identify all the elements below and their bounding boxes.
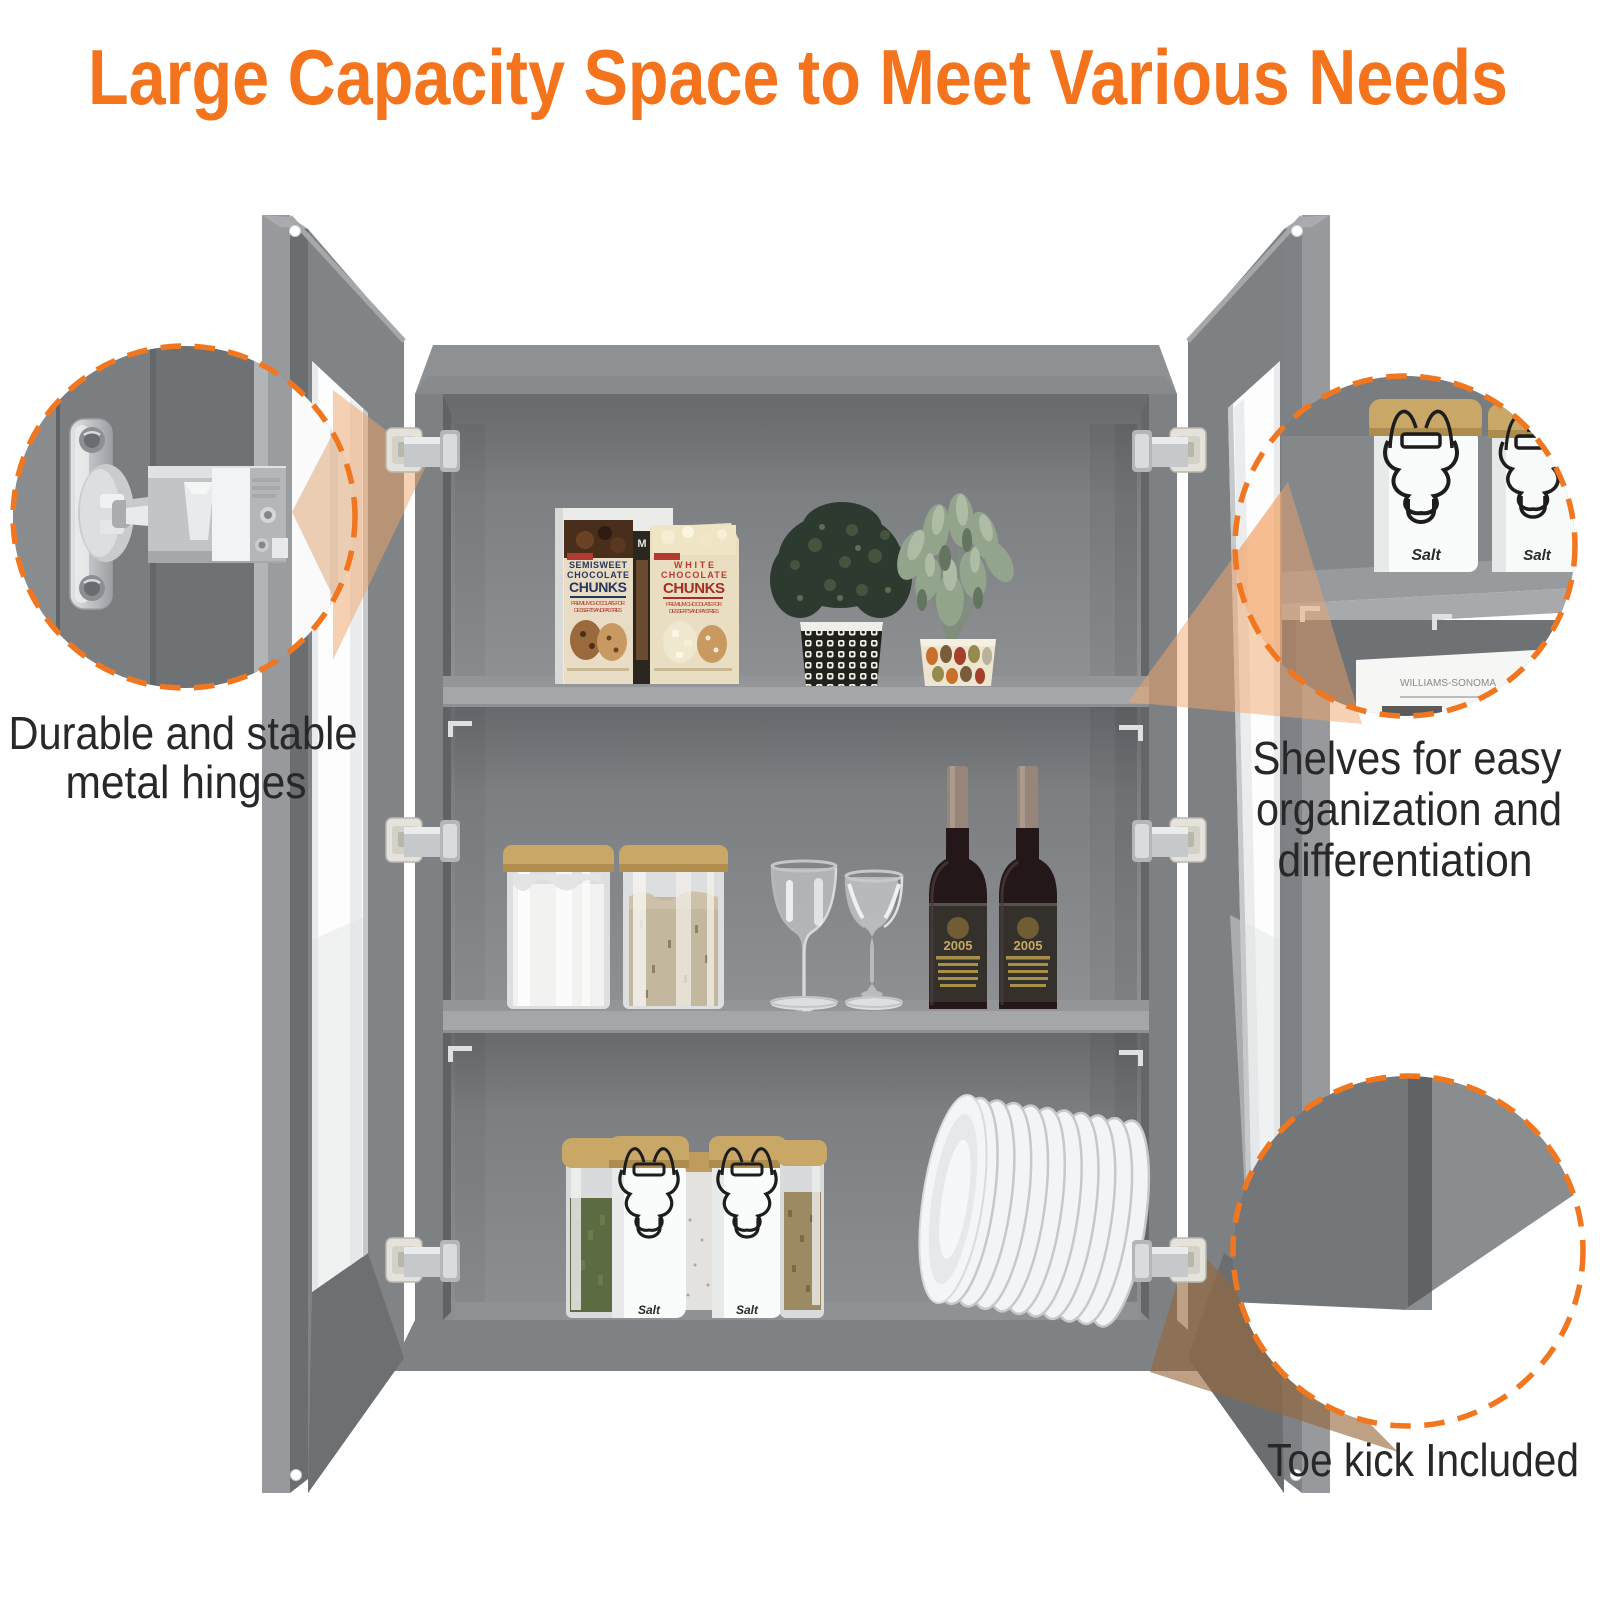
- svg-text:Salt: Salt: [638, 1303, 661, 1317]
- svg-text:Toe kick Included: Toe kick Included: [1267, 1434, 1579, 1486]
- svg-text:WHITE: WHITE: [674, 560, 714, 570]
- svg-text:differentiation: differentiation: [1278, 834, 1533, 886]
- svg-text:organization and: organization and: [1256, 783, 1562, 835]
- svg-text:DESSERTS AND PASTRIES: DESSERTS AND PASTRIES: [669, 609, 719, 615]
- svg-text:CHOCOLATE: CHOCOLATE: [661, 570, 727, 580]
- svg-text:Salt: Salt: [1523, 547, 1552, 564]
- svg-text:Large Capacity Space to Meet V: Large Capacity Space to Meet Various Nee…: [88, 33, 1508, 121]
- svg-text:WILLIAMS-SONOMA: WILLIAMS-SONOMA: [1400, 678, 1496, 689]
- svg-text:Durable and stable: Durable and stable: [9, 707, 358, 759]
- svg-text:CHUNKS: CHUNKS: [663, 580, 725, 597]
- svg-text:DESSERTS AND PASTRIES: DESSERTS AND PASTRIES: [574, 608, 622, 614]
- svg-text:Salt: Salt: [736, 1303, 759, 1317]
- svg-text:Salt: Salt: [1411, 547, 1441, 564]
- svg-text:2005: 2005: [944, 938, 973, 953]
- svg-text:SEMISWEET: SEMISWEET: [569, 560, 628, 570]
- svg-text:PREMIUM CHOCOLATE FOR: PREMIUM CHOCOLATE FOR: [571, 601, 625, 607]
- svg-text:Shelves for easy: Shelves for easy: [1253, 732, 1562, 784]
- svg-text:CHUNKS: CHUNKS: [569, 579, 627, 595]
- svg-text:metal hinges: metal hinges: [66, 756, 307, 808]
- svg-text:2005: 2005: [1014, 938, 1043, 953]
- svg-text:M: M: [637, 538, 646, 550]
- svg-text:PREMIUM CHOCOLATE FOR: PREMIUM CHOCOLATE FOR: [666, 602, 722, 608]
